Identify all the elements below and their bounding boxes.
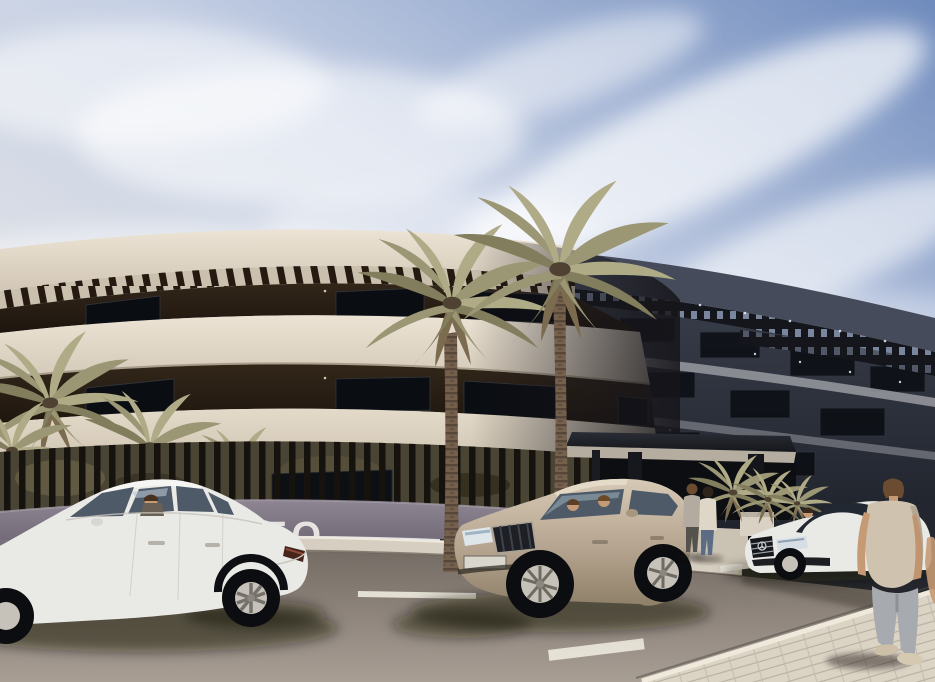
sedan-driver-torso xyxy=(140,503,164,516)
person-head xyxy=(687,484,698,495)
person-head xyxy=(703,487,714,498)
scene-canvas: TO xyxy=(0,0,935,682)
man-hair xyxy=(883,479,904,499)
architectural-render: TO xyxy=(0,0,935,682)
person-jacket xyxy=(683,495,701,529)
suv-mirror xyxy=(626,509,638,517)
sedan-door-handle xyxy=(148,541,165,545)
sedan-door-handle-2 xyxy=(205,543,220,547)
sedan-mirror xyxy=(91,518,103,526)
person-jacket xyxy=(699,498,717,532)
suv-door-handle xyxy=(592,540,608,544)
suv-door-handle-2 xyxy=(650,536,664,540)
